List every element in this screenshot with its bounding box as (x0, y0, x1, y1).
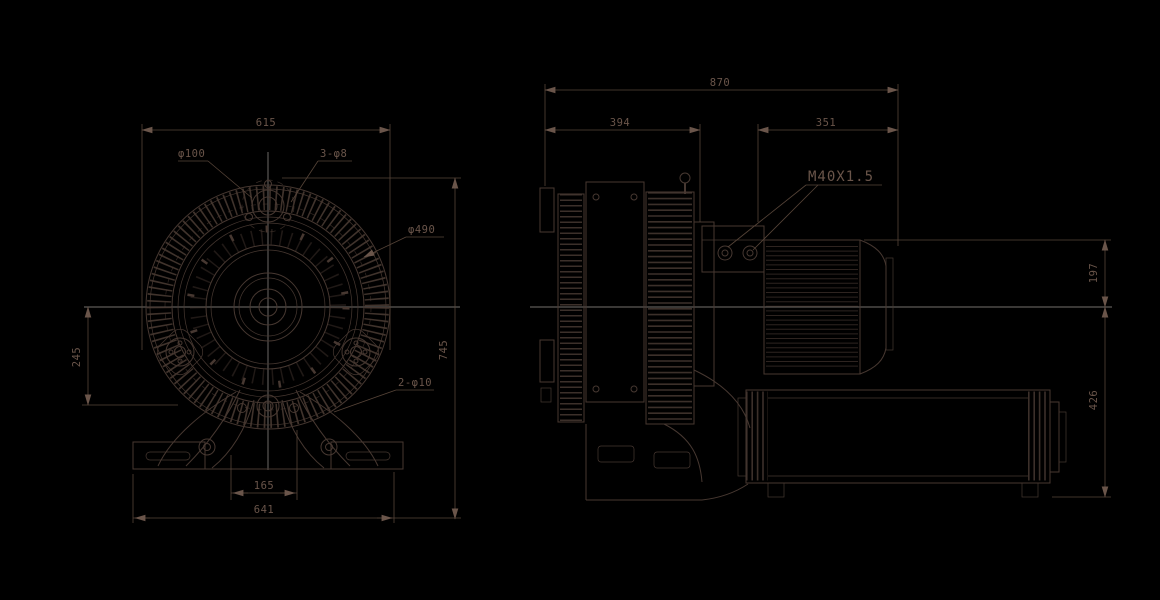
dim-label-housing-length: 394 (610, 117, 630, 129)
front-centerlines (84, 152, 460, 470)
label-inlet-diameter: φ100 (178, 148, 205, 160)
label-foot-holes: 2-φ10 (398, 377, 432, 389)
port-stub-top (540, 188, 554, 232)
drawing-canvas: 615 745 245 165 641 φ100 3-φ8 φ490 2-φ10 (0, 0, 1160, 600)
dim-label-top-width: 615 (256, 117, 276, 129)
dim-label-center-to-base: 245 (71, 347, 83, 367)
dim-label-port-spacing: 165 (254, 480, 274, 492)
housing-plate (586, 182, 644, 402)
dim-label-height-above-center: 197 (1088, 263, 1100, 283)
side-view: 870 394 351 197 426 M40X1.5 (530, 77, 1112, 500)
dim-label-motor-length: 351 (816, 117, 836, 129)
dim-label-total-length: 870 (710, 77, 730, 89)
technical-drawing: 615 745 245 165 641 φ100 3-φ8 φ490 2-φ10 (0, 0, 1160, 600)
front-dimension-labels: 615 745 245 165 641 φ100 3-φ8 φ490 2-φ10 (71, 117, 450, 516)
dim-label-height-below-center: 426 (1088, 390, 1100, 410)
side-view-parts (540, 173, 1066, 500)
label-housing-diameter: φ490 (408, 224, 435, 236)
port-stub-bottom (540, 340, 554, 382)
label-cable-gland-thread: M40X1.5 (808, 169, 874, 185)
front-view: 615 745 245 165 641 φ100 3-φ8 φ490 2-φ10 (71, 117, 461, 523)
terminal-box (702, 226, 764, 272)
cable-gland-left (718, 246, 732, 260)
dim-label-height: 745 (438, 340, 450, 360)
dim-label-base-width: 641 (254, 504, 274, 516)
silencer (738, 390, 1066, 497)
label-inlet-bolts: 3-φ8 (320, 148, 347, 160)
motor-adapter (694, 222, 714, 386)
eyebolt (680, 173, 690, 183)
side-dimensions (545, 84, 1111, 497)
